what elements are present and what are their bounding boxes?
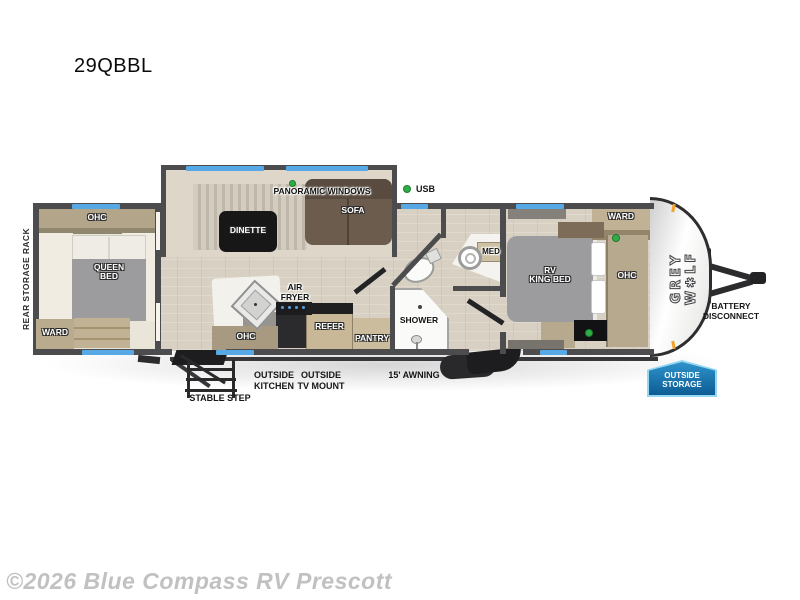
awning-bar	[170, 357, 658, 361]
brand-logo: GREY W✱LF	[669, 223, 683, 333]
kitchen-ohc-label: OHC	[231, 332, 261, 341]
wall-bath-entry	[453, 286, 505, 291]
stable-step-label: STABLE STEP	[182, 393, 258, 404]
divider-door-panel-bottom	[156, 303, 160, 341]
wall-frontbed-b	[500, 332, 506, 354]
outside-storage-badge-inner: OUTSIDE STORAGE	[649, 362, 715, 395]
bath-sink-basin	[465, 253, 476, 264]
hitch-arm-upper	[705, 262, 753, 281]
med-label: MED	[476, 247, 506, 256]
window-rear-top	[72, 204, 120, 209]
shower-label: SHOWER	[392, 316, 446, 326]
frontbed-bottom-bench	[508, 340, 564, 349]
window-frontbed-bottom	[540, 350, 567, 355]
kitchen-sink-drain	[254, 303, 257, 306]
panoramic-usb-dot	[289, 180, 296, 187]
rear-bed-steps	[74, 318, 130, 348]
divider-door-panel-top	[156, 212, 160, 250]
awning-label: 15' AWNING	[386, 370, 442, 381]
page-title: 29QBBL	[74, 55, 153, 78]
wall-bottom-mid	[226, 349, 469, 355]
queen-bed-label: QUEEN BED	[72, 263, 146, 282]
panoramic-windows-label: PANORAMIC WINDOWS	[252, 187, 392, 197]
rear-ward-label: WARD	[36, 328, 74, 337]
watermark: ©2026 Blue Compass RV Prescott	[6, 568, 392, 595]
queen-bed-pillow-seam	[108, 237, 110, 259]
rear-storage-rack-label: REAR STORAGE RACK	[21, 219, 31, 339]
stove-burner-4	[302, 306, 305, 309]
window-main-top-1	[401, 204, 428, 209]
rear-dresser-left	[39, 233, 73, 321]
frontbed-corner-cabinet	[558, 222, 604, 238]
front-ohc-cabinet	[606, 235, 648, 347]
stable-step-rung-2	[186, 378, 236, 381]
window-main-top-2	[516, 204, 564, 209]
usb-label: USB	[416, 184, 446, 195]
stove-burner-3	[295, 306, 298, 309]
hitch-arm-lower	[705, 279, 753, 298]
refrigerator-top	[306, 303, 353, 314]
stove-burner-2	[288, 306, 291, 309]
front-ward-label: WARD	[594, 212, 648, 221]
frontbed-usb-dot-bottom	[585, 329, 593, 337]
wall-bath-vertical	[441, 206, 446, 238]
hitch-coupler	[750, 272, 766, 284]
floorplan-page: 29QBBL REAR STORAGE RACK OHC QUEEN BED W…	[0, 0, 800, 600]
air-fryer-label: AIR FRYER	[270, 283, 320, 303]
window-kitchen-bottom	[216, 350, 254, 355]
stable-step-rung-1	[187, 368, 235, 371]
king-bed-label: RV KING BED	[507, 266, 593, 285]
king-pillow-1	[591, 242, 606, 276]
pantry-label: PANTRY	[350, 334, 394, 343]
outside-storage-label: OUTSIDE STORAGE	[649, 371, 715, 389]
window-slideout-1	[186, 166, 264, 171]
king-pillow-2	[591, 280, 606, 314]
oven-cabinet	[276, 315, 308, 348]
sofa-label: SOFA	[328, 206, 378, 215]
window-slideout-2	[286, 166, 368, 171]
stove-burner-1	[281, 306, 284, 309]
battery-disconnect-label: BATTERY DISCONNECT	[693, 301, 769, 321]
usb-dot	[403, 185, 411, 193]
stable-step-rung-3	[185, 389, 237, 392]
frontbed-usb-dot-top	[612, 234, 620, 242]
rear-ohc-label: OHC	[82, 213, 112, 222]
shower-drain	[418, 305, 422, 309]
window-rear-bottom	[82, 350, 134, 355]
refer-label: REFER	[306, 322, 353, 331]
dinette-label: DINETTE	[219, 226, 277, 235]
outside-tv-mount-label: OUTSIDE TV MOUNT	[292, 370, 350, 392]
front-ohc-label: OHC	[608, 271, 646, 280]
